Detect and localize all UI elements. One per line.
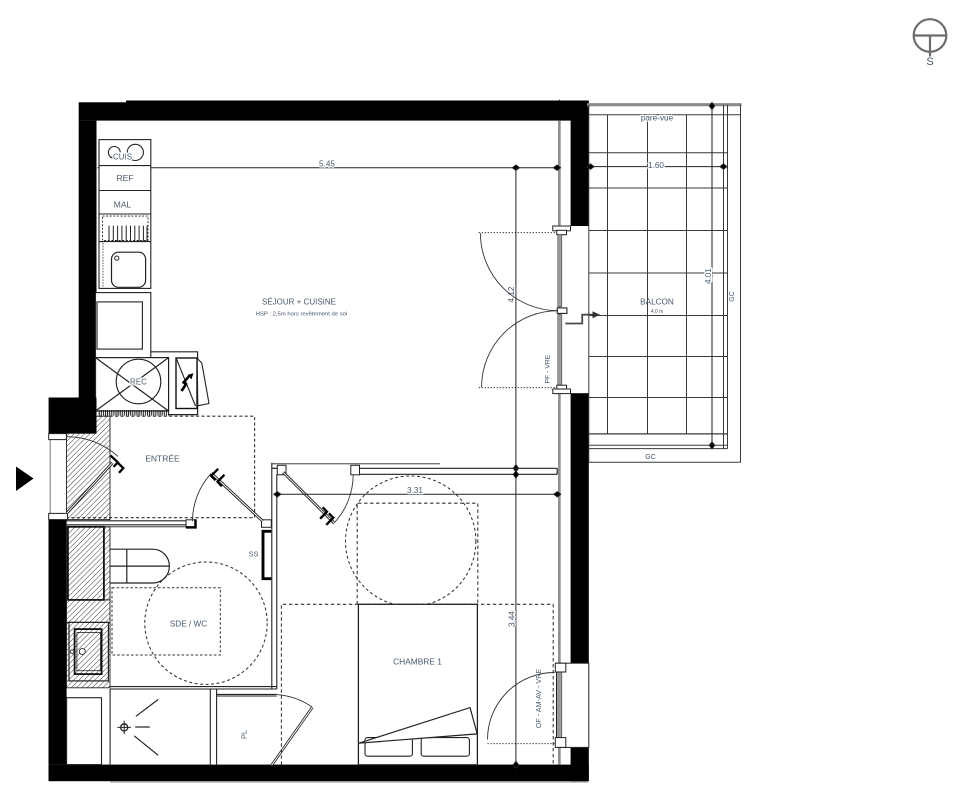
svg-text:3.44: 3.44	[507, 611, 516, 627]
svg-text:SS: SS	[249, 549, 259, 558]
svg-text:ENTRÉE: ENTRÉE	[145, 453, 180, 463]
svg-text:GC: GC	[729, 291, 736, 302]
svg-text:PF - VRE: PF - VRE	[545, 354, 552, 383]
svg-text:4.01: 4.01	[704, 268, 713, 284]
svg-text:S: S	[926, 56, 933, 68]
svg-text:3.31: 3.31	[407, 486, 423, 495]
svg-text:1.60: 1.60	[648, 161, 664, 170]
svg-text:SDE / WC: SDE / WC	[170, 620, 207, 629]
svg-text:GC: GC	[645, 454, 656, 461]
svg-text:BALCON: BALCON	[640, 298, 674, 307]
svg-text:MAL: MAL	[114, 200, 132, 210]
svg-text:OF - AM-AV - VRE: OF - AM-AV - VRE	[534, 669, 543, 729]
svg-text:REF: REF	[117, 173, 134, 183]
svg-text:pare-vue: pare-vue	[641, 113, 674, 122]
svg-text:4.12: 4.12	[507, 286, 516, 302]
svg-text:SÉJOUR + CUISINE: SÉJOUR + CUISINE	[262, 298, 336, 307]
svg-text:4,0 m: 4,0 m	[651, 309, 664, 315]
svg-text:CHAMBRE 1: CHAMBRE 1	[393, 657, 442, 667]
svg-text:REC: REC	[130, 378, 147, 387]
svg-text:5.45: 5.45	[319, 159, 335, 168]
svg-text:CUIS: CUIS	[113, 153, 132, 162]
svg-text:HSP : 2,5m hors revêtement de: HSP : 2,5m hors revêtement de sol	[256, 312, 348, 318]
svg-text:PL: PL	[239, 730, 248, 739]
